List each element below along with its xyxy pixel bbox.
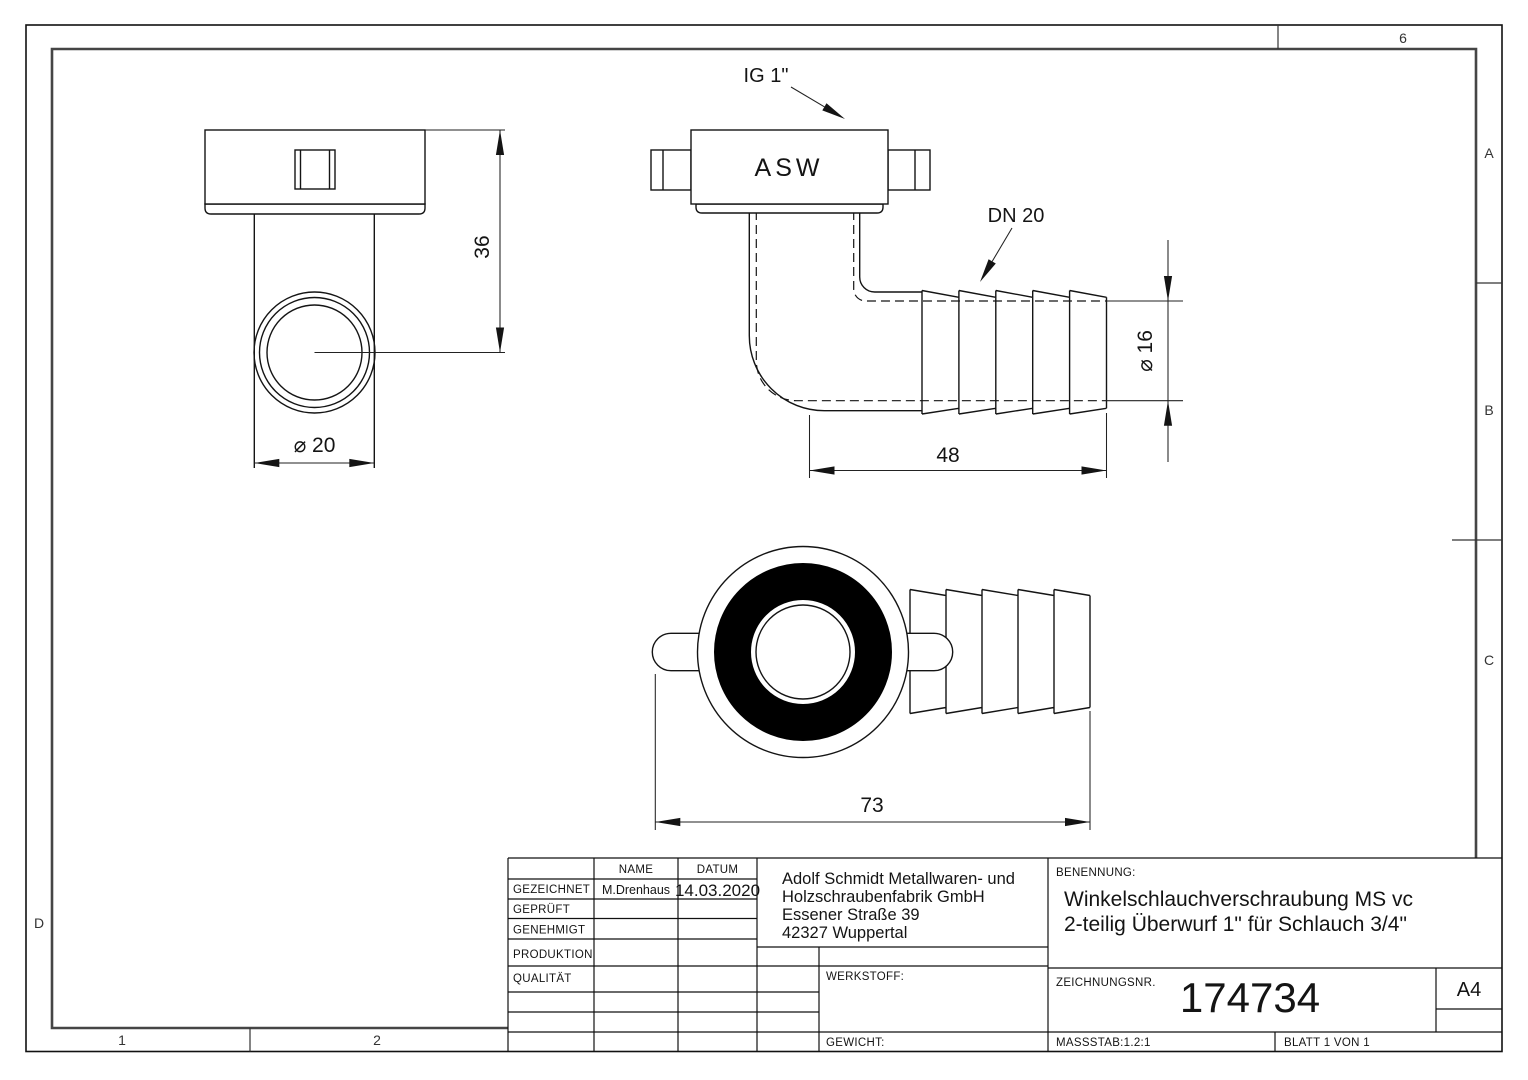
elbow-inner-profile <box>860 211 922 292</box>
tb-company-line4: 42327 Wuppertal <box>782 924 907 942</box>
nominal-leader-arrow <box>980 259 996 282</box>
dim20-text: ⌀ 20 <box>294 434 336 457</box>
nut-flat-right <box>888 150 930 190</box>
tb-row-qualitaet: QUALITÄT <box>513 973 572 985</box>
thread-leader-arrow <box>822 103 845 119</box>
dim73-arrow-left <box>655 818 680 826</box>
tb-header-name: NAME <box>619 864 653 876</box>
tb-gewicht-label: GEWICHT: <box>826 1037 885 1049</box>
nut-collar-lip-side <box>696 204 883 213</box>
bore-hidden-inner <box>854 211 1107 301</box>
elbow-outer-profile <box>749 211 922 411</box>
dim16-text: ⌀ 16 <box>1134 330 1157 372</box>
tb-row-gezeichnet: GEZEICHNET <box>513 884 590 896</box>
zone-label-1: 1 <box>118 1032 126 1048</box>
tb-format: A4 <box>1457 979 1481 1001</box>
drawing-sheet: 6 A B C D 1 2 36 ⌀ 20 <box>0 0 1528 1080</box>
nut-body-front <box>205 130 425 204</box>
tb-drawn-by: M.Drenhaus <box>602 883 670 897</box>
dim48-arrow-left <box>810 466 835 474</box>
dim36-arrow-down <box>496 328 504 353</box>
tb-blatt: BLATT 1 VON 1 <box>1284 1037 1370 1049</box>
tb-company-line1: Adolf Schmidt Metallwaren- und <box>782 870 1015 888</box>
wrench-tab-left <box>652 633 700 670</box>
bore-circle <box>756 605 850 699</box>
nut-collar-lip <box>205 204 425 214</box>
zone-label-a: A <box>1484 145 1494 161</box>
technical-drawing-svg: 6 A B C D 1 2 36 ⌀ 20 <box>0 0 1528 1080</box>
tb-benennung-label: BENENNUNG: <box>1056 867 1136 879</box>
thread-leader-line <box>791 87 824 107</box>
tb-zeichnungsnr-label: ZEICHNUNGSNR. <box>1056 977 1156 989</box>
nut-flat-left <box>651 150 691 190</box>
dim20-arrow-right <box>349 459 374 467</box>
zone-label-c: C <box>1484 652 1494 668</box>
zone-label-2: 2 <box>373 1032 381 1048</box>
tb-row-produktion: PRODUKTION <box>513 949 593 961</box>
view-front: 36 ⌀ 20 <box>205 130 505 468</box>
tb-drawn-date: 14.03.2020 <box>675 881 760 900</box>
zone-label-d: D <box>34 915 44 931</box>
thread-label-text: IG 1" <box>744 65 789 87</box>
dim48-arrow-right <box>1082 466 1107 474</box>
dim73-arrow-right <box>1065 818 1090 826</box>
dim36-arrow-up <box>496 130 504 155</box>
tb-massstab: MASSSTAB:1.2:1 <box>1056 1037 1151 1049</box>
bore-hidden-outer <box>756 211 1106 401</box>
tb-company-line2: Holzschraubenfabrik GmbH <box>782 888 985 906</box>
view-side: ASW IG 1" DN 20 48 ⌀ 16 <box>651 65 1183 478</box>
tb-header-datum: DATUM <box>697 864 739 876</box>
dim73-text: 73 <box>860 794 883 817</box>
tb-company-line3: Essener Straße 39 <box>782 906 920 924</box>
view-bottom: 73 <box>652 547 1090 831</box>
tb-title-line1: Winkelschlauchverschraubung MS vc <box>1064 888 1413 911</box>
nut-marking-text: ASW <box>755 154 824 182</box>
dim36-text: 36 <box>471 235 494 258</box>
tb-title-line2: 2-teilig Überwurf 1" für Schlauch 3/4" <box>1064 913 1407 936</box>
title-block: NAME DATUM GEZEICHNET GEPRÜFT GENEHMIGT … <box>508 858 1502 1052</box>
nominal-label-text: DN 20 <box>988 205 1045 227</box>
tb-row-geprueft: GEPRÜFT <box>513 904 570 916</box>
dim20-arrow-left <box>254 459 279 467</box>
wrench-tab-right <box>905 633 953 670</box>
dim16-arrow-down <box>1164 276 1172 301</box>
tb-row-genehmigt: GENEHMIGT <box>513 925 585 937</box>
tb-werkstoff-label: WERKSTOFF: <box>826 971 904 983</box>
tb-drawing-number: 174734 <box>1180 974 1320 1021</box>
nominal-leader-line <box>992 228 1012 261</box>
zone-label-6: 6 <box>1399 30 1407 46</box>
dim48-text: 48 <box>936 444 959 467</box>
zone-label-b: B <box>1484 402 1493 418</box>
dim16-arrow-up <box>1164 401 1172 426</box>
hose-barbs-side <box>922 291 1107 415</box>
